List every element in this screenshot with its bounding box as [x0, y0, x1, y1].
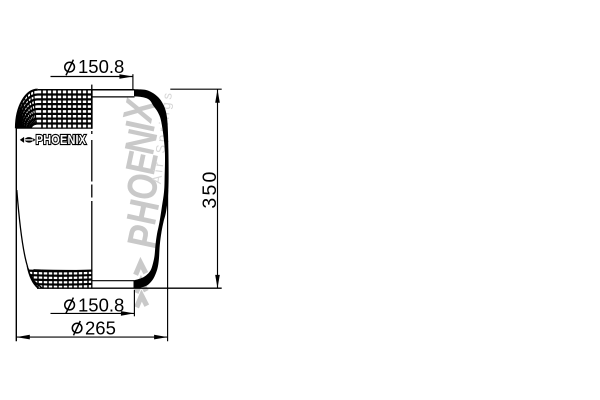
svg-text:350: 350 — [199, 169, 221, 208]
svg-text:150.8: 150.8 — [78, 294, 124, 315]
svg-text:265: 265 — [85, 318, 116, 339]
svg-text:150.8: 150.8 — [78, 56, 124, 77]
svg-text:PHOENIX: PHOENIX — [36, 132, 87, 147]
